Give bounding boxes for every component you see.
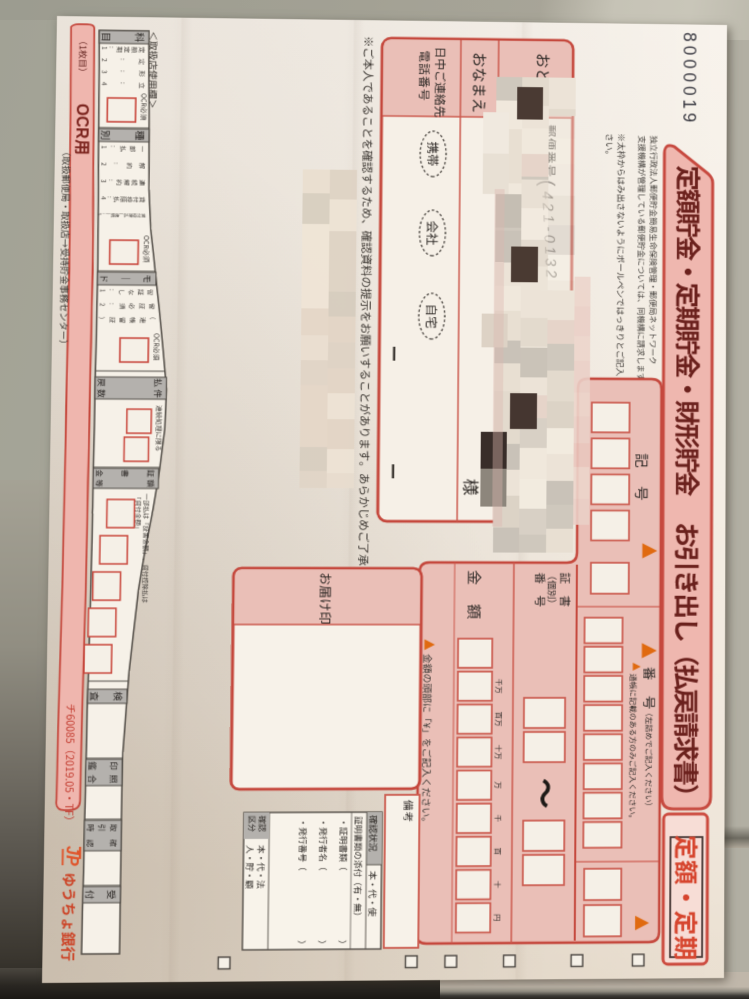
svg-text:OCR: OCR	[72, 103, 90, 139]
svg-text:8000019: 8000019	[679, 32, 699, 126]
svg-text:JP: JP	[62, 846, 80, 867]
